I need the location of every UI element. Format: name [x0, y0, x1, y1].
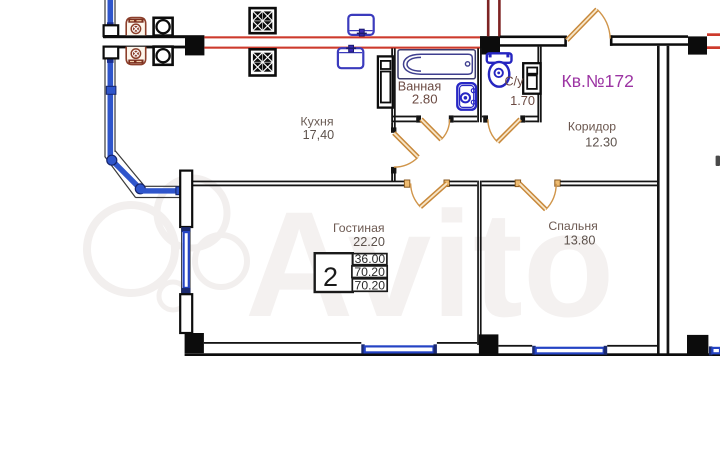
svg-text:17,40: 17,40	[303, 128, 335, 142]
svg-text:70.20: 70.20	[355, 279, 386, 293]
svg-text:Спальня: Спальня	[548, 219, 597, 233]
svg-text:Коридор: Коридор	[568, 120, 616, 134]
svg-text:Avito: Avito	[245, 180, 614, 348]
svg-text:22.20: 22.20	[353, 235, 385, 249]
svg-text:13.80: 13.80	[564, 233, 596, 247]
svg-text:1.70: 1.70	[510, 93, 535, 108]
svg-text:70.20: 70.20	[354, 265, 385, 279]
svg-text:Кухня: Кухня	[300, 115, 333, 129]
svg-text:Гостиная: Гостиная	[333, 221, 385, 235]
svg-text:2.80: 2.80	[412, 92, 438, 107]
svg-text:12.30: 12.30	[585, 134, 617, 149]
svg-text:2: 2	[323, 262, 338, 292]
svg-text:Кв.№172: Кв.№172	[562, 71, 634, 91]
svg-text:С/у: С/у	[505, 74, 525, 88]
